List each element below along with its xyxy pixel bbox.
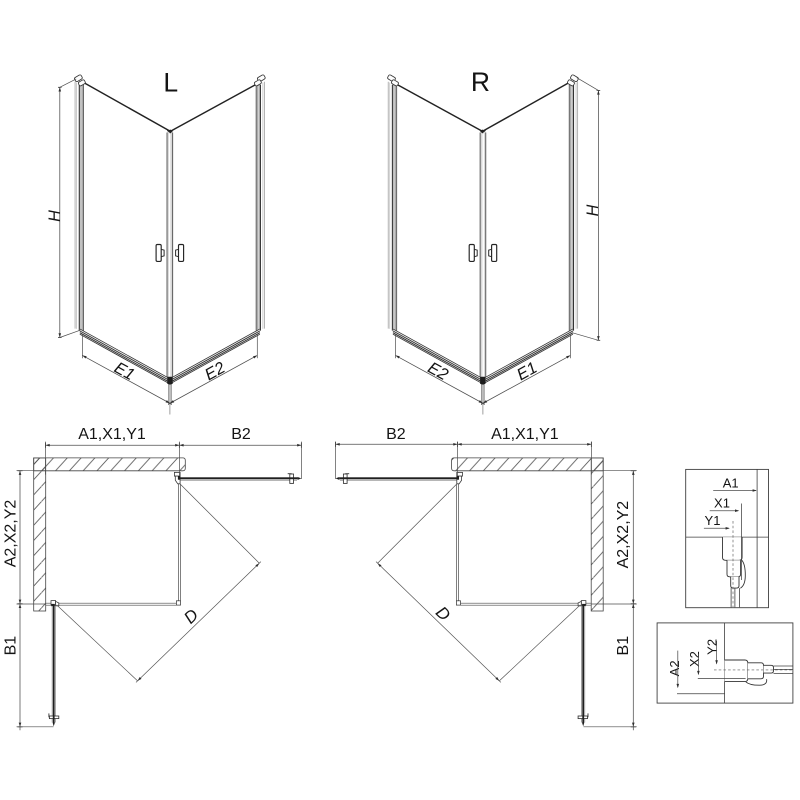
svg-text:X1: X1	[714, 496, 730, 511]
svg-text:Y2: Y2	[705, 639, 720, 655]
svg-text:A1,X1,Y1: A1,X1,Y1	[491, 426, 559, 443]
svg-text:A1,X1,Y1: A1,X1,Y1	[78, 426, 146, 443]
svg-text:Y1: Y1	[705, 513, 721, 528]
svg-text:H: H	[46, 210, 64, 222]
svg-text:B2: B2	[386, 426, 406, 443]
svg-text:A2,X2,Y2: A2,X2,Y2	[3, 500, 20, 568]
svg-text:B1: B1	[615, 636, 632, 656]
svg-text:B2: B2	[231, 426, 251, 443]
svg-text:A2: A2	[667, 660, 682, 676]
svg-text:R: R	[471, 67, 490, 97]
svg-text:A2,X2,Y2: A2,X2,Y2	[615, 501, 632, 569]
svg-text:L: L	[163, 68, 178, 98]
svg-text:X2: X2	[687, 651, 702, 667]
svg-text:B1: B1	[3, 636, 20, 656]
svg-text:H: H	[584, 204, 602, 216]
svg-text:A1: A1	[723, 475, 739, 490]
